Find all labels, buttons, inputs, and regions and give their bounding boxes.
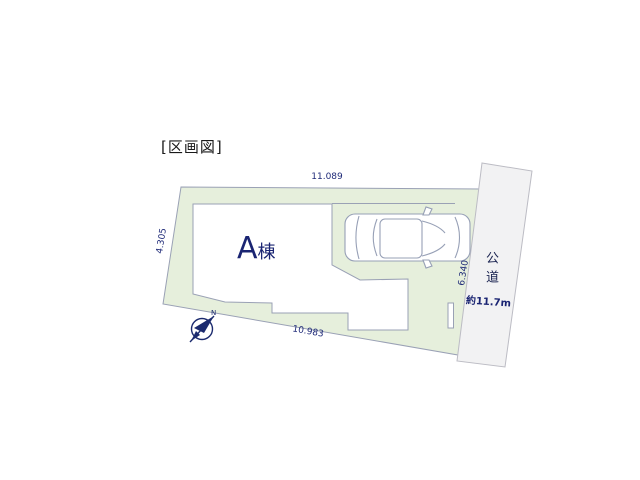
building-label: A棟 <box>237 234 276 264</box>
site-plan-canvas: N <box>0 0 640 480</box>
dimension-top: 11.089 <box>297 172 357 182</box>
building-name: A <box>237 234 258 264</box>
car-icon <box>345 207 470 268</box>
compass-icon: N <box>190 309 216 342</box>
page-title: [区画図] <box>161 136 223 157</box>
road-width-label: 約11.7m <box>466 291 512 309</box>
site-plan-page: N [区画図] 11.089 4.305 6.340 10.983 A棟 公道 … <box>0 0 640 480</box>
gate-post-shape <box>448 303 454 328</box>
road-label: 公道 <box>481 251 500 289</box>
compass-north-label: N <box>211 309 216 317</box>
building-suffix: 棟 <box>258 244 276 262</box>
